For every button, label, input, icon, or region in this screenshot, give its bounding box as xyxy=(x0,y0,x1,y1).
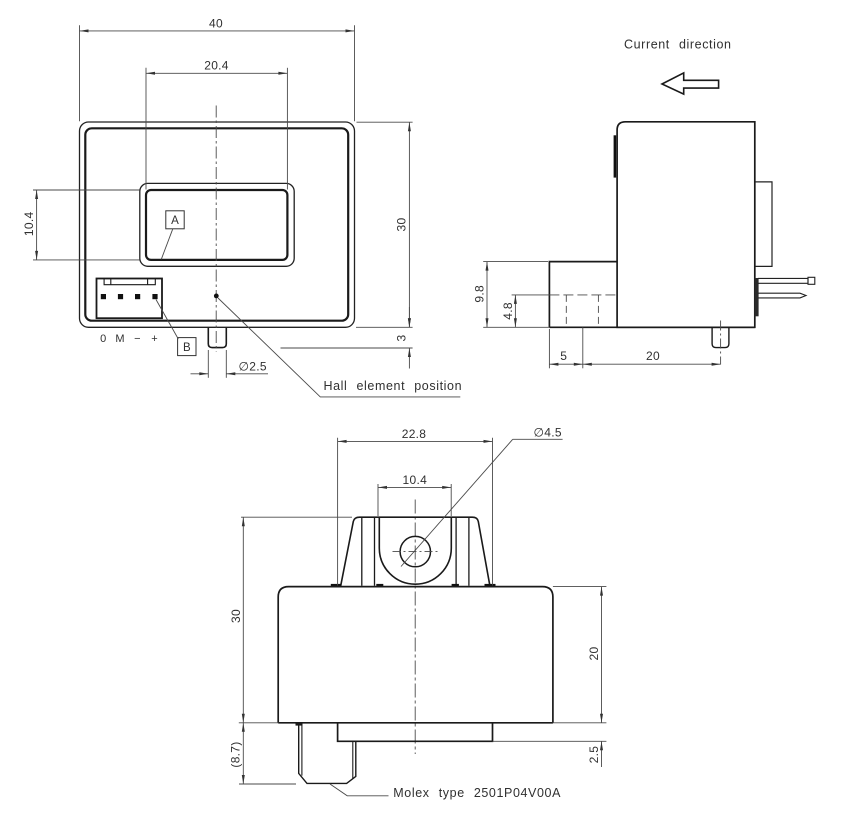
svg-text:4.8: 4.8 xyxy=(501,302,515,320)
svg-text:20: 20 xyxy=(587,647,601,661)
svg-text:40: 40 xyxy=(209,16,223,30)
svg-text:Hall element position: Hall element position xyxy=(324,379,463,393)
svg-text:30: 30 xyxy=(395,218,409,232)
svg-text:10.4: 10.4 xyxy=(22,211,36,236)
svg-text:∅2.5: ∅2.5 xyxy=(239,359,267,373)
svg-text:∅4.5: ∅4.5 xyxy=(534,425,562,439)
svg-text:2.5: 2.5 xyxy=(587,746,601,764)
svg-text:M: M xyxy=(115,333,124,345)
svg-text:(8.7): (8.7) xyxy=(228,741,242,767)
svg-text:0: 0 xyxy=(100,333,106,345)
svg-text:B: B xyxy=(183,342,191,354)
svg-text:20.4: 20.4 xyxy=(204,59,229,73)
svg-text:9.8: 9.8 xyxy=(472,285,486,303)
svg-text:Molex type 2501P04V00A: Molex type 2501P04V00A xyxy=(393,786,561,800)
svg-text:3: 3 xyxy=(395,334,409,341)
svg-text:−: − xyxy=(134,333,140,345)
svg-text:Current direction: Current direction xyxy=(624,38,732,52)
svg-text:5: 5 xyxy=(560,349,567,363)
svg-text:A: A xyxy=(171,215,179,227)
svg-text:30: 30 xyxy=(229,609,243,623)
svg-text:22.8: 22.8 xyxy=(402,427,427,441)
svg-text:10.4: 10.4 xyxy=(403,473,428,487)
svg-text:+: + xyxy=(151,333,157,345)
svg-text:20: 20 xyxy=(646,349,660,363)
